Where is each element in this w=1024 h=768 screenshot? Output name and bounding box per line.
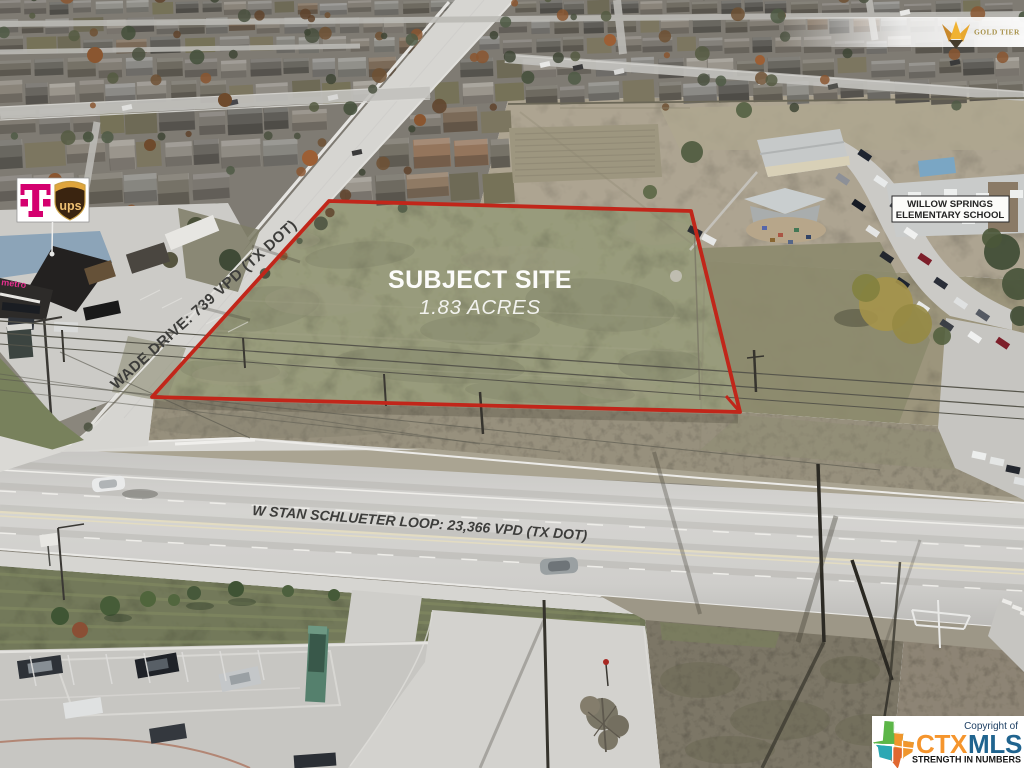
svg-text:1.83 ACRES: 1.83 ACRES [419,296,540,319]
svg-text:SUBJECT SITE: SUBJECT SITE [388,266,572,294]
svg-text:WILLOW SPRINGS: WILLOW SPRINGS [907,199,993,210]
svg-text:GOLD TIER: GOLD TIER [974,28,1020,37]
svg-text:STRENGTH IN NUMBERS: STRENGTH IN NUMBERS [912,755,1021,765]
svg-text:ELEMENTARY SCHOOL: ELEMENTARY SCHOOL [896,210,1005,221]
svg-text:ups: ups [59,199,81,213]
